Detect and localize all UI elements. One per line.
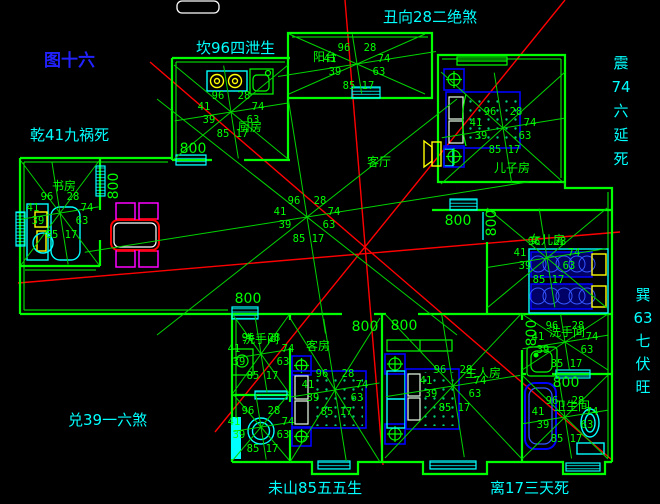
compass-label-chou: 丑向28二绝煞 [383,8,477,26]
star-number: 39 [233,356,246,368]
room-label-son: 儿子房 [494,160,530,175]
star-number: 39 [203,114,216,126]
star-number: 17 [458,402,471,414]
star-number: 41 [228,343,241,355]
figure-title: 图十六 [44,50,95,71]
star-number: 63 [563,260,576,272]
star-number: 28 [314,195,327,207]
star-number: 39 [537,419,550,431]
compass-label-zhen: 震 [613,54,628,72]
dimension-label: 800 [106,173,122,200]
window-west-wall [16,212,25,246]
star-number: 63 [519,130,532,142]
star-number: 74 [568,247,581,259]
cad-floorplan-canvas[interactable]: 9628417439638517厨房9628417439638517书房9628… [0,0,660,504]
compass-label-zhen: 74 [611,78,630,96]
star-number: 41 [228,416,241,428]
star-number: 74 [252,101,265,113]
star-number: 96 [212,90,225,102]
star-number: 63 [469,388,482,400]
compass-label-dui: 兑39一六煞 [68,411,147,429]
room-label-living: 客厅 [367,154,391,169]
star-number: 63 [277,356,290,368]
floorplan-svg: 9628417439638517厨房9628417439638517书房9628… [0,0,660,504]
star-number: 39 [32,215,45,227]
star-number: 74 [328,206,341,218]
compass-label-zhen: 延 [613,126,628,144]
star-number: 74 [282,416,295,428]
room-label-bath-nw: 洗手间 [243,332,279,346]
star-number: 74 [282,343,295,355]
room-label-master: 主人房 [465,365,501,380]
compass-label-xun: 七 [635,332,650,350]
star-number: 39 [519,260,532,272]
compass-label-xun: 63 [633,309,652,327]
dimension-label: 800 [352,319,379,335]
star-number: 63 [323,219,336,231]
dimension-label: 800 [524,320,540,347]
star-number: 17 [362,80,375,92]
window-south-1 [318,461,350,469]
star-number: 41 [532,406,545,418]
dimension-label: 800 [180,141,207,157]
compass-label-xun: 伏 [635,355,650,373]
star-number: 17 [340,406,353,418]
star-number: 63 [581,419,594,431]
star-number: 41 [302,379,315,391]
star-number: 28 [238,90,251,102]
star-number: 85 [321,406,334,418]
compass-label-xun: 旺 [635,378,650,396]
star-number: 85 [247,370,260,382]
room-label-guest: 客房 [306,338,330,353]
star-number: 39 [425,388,438,400]
star-number: 63 [76,215,89,227]
compass-label-zhen: 六 [613,102,628,120]
window-corridor [232,307,258,319]
star-number: 96 [434,364,447,376]
window-study [96,166,105,196]
star-number: 39 [233,429,246,441]
window-south-3 [566,463,600,471]
compass-label-wei: 未山85五五生 [268,479,362,497]
dimension-label: 800 [391,318,418,334]
star-number: 74 [378,53,391,65]
star-number: 74 [586,331,599,343]
star-number: 96 [484,106,497,118]
star-number: 41 [198,101,211,113]
room-label-bath-se: 卫生间 [554,399,590,413]
star-number: 96 [242,405,255,417]
window-hall [450,199,477,210]
star-number: 17 [312,233,325,245]
star-number: 74 [81,202,94,214]
star-number: 96 [316,368,329,380]
star-number: 96 [338,42,351,54]
star-number: 85 [217,128,230,140]
dimension-label: 800 [235,291,262,307]
dimension-label: 800 [484,210,500,237]
star-number: 85 [439,402,452,414]
star-number: 74 [524,117,537,129]
star-number: 39 [279,219,292,231]
window-south-2 [430,461,476,469]
star-number: 85 [46,229,59,241]
star-number: 85 [533,274,546,286]
star-number: 96 [288,195,301,207]
star-number: 63 [581,344,594,356]
star-number: 28 [364,42,377,54]
compass-label-xun: 巽 [635,286,650,304]
star-number: 17 [266,443,279,455]
star-number: 41 [420,375,433,387]
compass-label-kan: 坎96四泄生 [196,39,275,57]
star-number: 41 [27,202,40,214]
compass-label-zhen: 死 [613,150,628,168]
star-number: 63 [373,66,386,78]
star-number: 85 [551,433,564,445]
room-label-study: 书房 [52,178,76,193]
window-bath-west [255,391,287,399]
star-number: 63 [351,392,364,404]
star-number: 85 [551,358,564,370]
star-number: 85 [343,80,356,92]
room-label-bath-ne: 洗手间 [549,325,585,339]
star-number: 28 [342,368,355,380]
room-label-kitchen: 厨房 [238,119,262,134]
room-label-balcony: 阳台 [313,49,337,64]
star-number: 85 [293,233,306,245]
star-number: 17 [552,274,565,286]
star-number: 17 [65,229,78,241]
star-number: 74 [356,379,369,391]
star-number: 28 [510,106,523,118]
star-number: 17 [570,358,583,370]
star-number: 85 [489,144,502,156]
star-number: 39 [329,66,342,78]
star-number: 41 [470,117,483,129]
star-number: 63 [277,429,290,441]
star-number: 17 [266,370,279,382]
dimension-label: 800 [445,213,472,229]
star-number: 41 [274,206,287,218]
star-number: 85 [247,443,260,455]
star-number: 39 [307,392,320,404]
star-number: 17 [508,144,521,156]
star-number: 39 [475,130,488,142]
star-number: 17 [570,433,583,445]
compass-label-qian: 乾41九祸死 [30,126,109,144]
star-number: 28 [268,405,281,417]
room-label-daughter: 女儿房 [529,232,565,247]
star-number: 41 [514,247,527,259]
dimension-label: 800 [553,375,580,391]
compass-label-li: 离17三天死 [490,479,569,497]
